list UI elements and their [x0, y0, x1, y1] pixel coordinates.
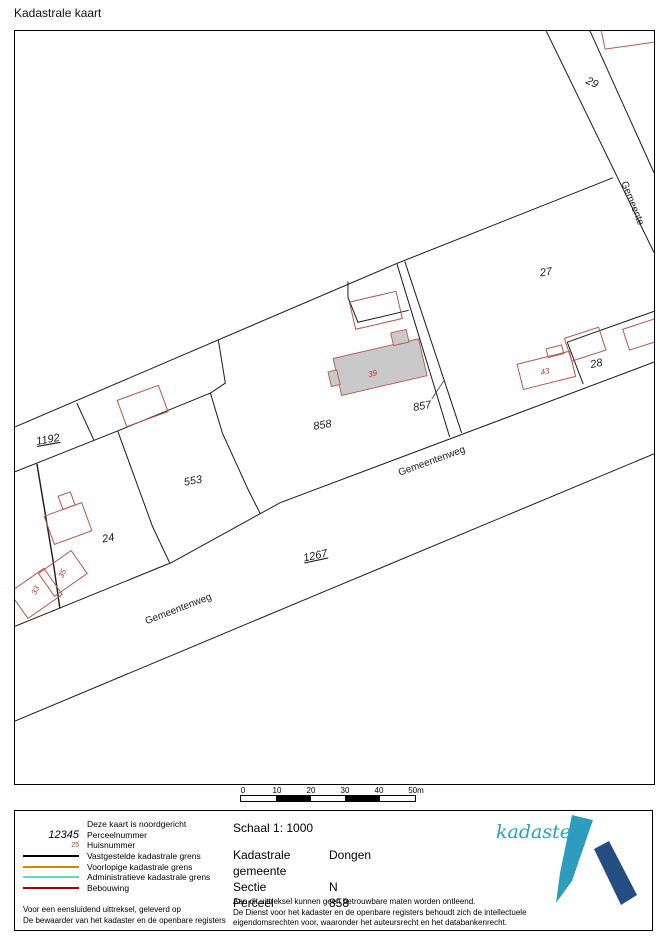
- disclaimer-line-1: Aan dit uittreksel kunnen geen betrouwba…: [233, 897, 533, 908]
- legend-row-vastgestelde-grens: Vastgestelde kadastrale grens: [23, 851, 238, 862]
- scale-tick-50m: 50m: [408, 786, 424, 795]
- legend-label: Perceelnummer: [87, 830, 147, 840]
- disclaimer-line-2: De Dienst voor het kadaster en de openba…: [233, 908, 533, 919]
- parcel-label-1267: 1267: [302, 547, 329, 564]
- parcel-label-1192: 1192: [35, 432, 60, 448]
- house-number-labels: 39 43 35 33: [30, 366, 551, 596]
- info-panel: Deze kaart is noordgericht 12345 Perceel…: [14, 810, 653, 931]
- certification-line-1: Voor een eensluidend uittreksel, gelever…: [23, 904, 253, 915]
- parcel-label-858: 858: [313, 418, 334, 433]
- kadaster-logo: kadaster: [496, 815, 644, 927]
- info-row-gemeente: Kadastrale gemeente Dongen: [233, 847, 371, 879]
- info-label: Kadastrale gemeente: [233, 847, 329, 879]
- buildings: [15, 31, 654, 618]
- scale-tick-10: 10: [273, 786, 282, 795]
- bebouwing-swatch: [23, 887, 79, 889]
- parcel-label-553: 553: [183, 474, 203, 489]
- scale-bar-segments: [240, 795, 416, 802]
- kadaster-logo-mark: [548, 815, 640, 925]
- scale-segment: [311, 796, 346, 801]
- administratieve-grens-swatch: [23, 876, 79, 878]
- house-number-35: 35: [57, 567, 69, 579]
- north-note: Deze kaart is noordgericht: [87, 819, 186, 829]
- house-number-33: 33: [30, 584, 42, 596]
- legend-label: Bebouwing: [87, 883, 129, 893]
- page-title: Kadastrale kaart: [14, 6, 101, 20]
- building-outline: [349, 291, 402, 329]
- scale-segment: [241, 796, 276, 801]
- road-label-gemeentenweg-2: Gemeentenweg: [397, 444, 467, 478]
- scale-segment: [380, 796, 415, 801]
- legend-row-perceelnummer: 12345 Perceelnummer: [23, 830, 238, 841]
- legend-row-bebouwing: Bebouwing: [23, 883, 238, 894]
- building-outline-28: [564, 327, 606, 361]
- huisnummer-sample: 25: [71, 842, 79, 849]
- info-row-sectie: Sectie N: [233, 879, 371, 895]
- building-39: [323, 327, 427, 397]
- building-outline-right: [623, 316, 654, 350]
- scale-bar: 0 10 20 30 40 50m: [240, 786, 416, 802]
- info-value: N: [329, 879, 338, 895]
- building-24: [39, 489, 91, 544]
- info-value: Dongen: [329, 847, 371, 879]
- cadastral-map[interactable]: 29 27 28 857 858 553 1192 24 1267 39 43 …: [14, 30, 655, 785]
- map-info: Schaal 1: 1000 Kadastrale gemeente Donge…: [233, 811, 503, 930]
- parcel-labels: 29 27 28 857 858 553 1192 24 1267: [35, 74, 604, 564]
- road-label-gemeente-right: Gemeente: [618, 180, 646, 228]
- house-number-43: 43: [540, 366, 551, 377]
- legend-row-huisnummer: 25 Huisnummer: [23, 840, 238, 851]
- vastgestelde-grens-swatch: [23, 855, 79, 857]
- scale-segment: [276, 796, 311, 801]
- legend-label: Vastgestelde kadastrale grens: [87, 851, 201, 861]
- disclaimer-line-3: eigendomsrechten voor, waaronder het aut…: [233, 918, 533, 929]
- kadaster-map-document: { "page": { "title": "Kadastrale kaart" …: [0, 0, 669, 944]
- parcel-label-857: 857: [412, 399, 433, 414]
- map-canvas: 29 27 28 857 858 553 1192 24 1267 39 43 …: [15, 31, 654, 784]
- scale-bar-ticks: 0 10 20 30 40 50m: [240, 786, 416, 795]
- parcel-label-28: 28: [588, 357, 604, 372]
- logo-bar-shape: [594, 841, 637, 905]
- logo-pen-shape: [556, 815, 593, 903]
- scale-segment: [345, 796, 380, 801]
- building-outline-left: [117, 385, 168, 426]
- legend-label: Huisnummer: [87, 840, 135, 850]
- scale-tick-0: 0: [241, 786, 245, 795]
- building-outline-top: [597, 31, 654, 49]
- scale-tick-30: 30: [341, 786, 350, 795]
- legend-label: Administratieve kadastrale grens: [87, 872, 210, 882]
- road-labels: Gemeentenweg Gemeentenweg Gemeente: [144, 180, 646, 627]
- parcel-label-27: 27: [538, 266, 554, 280]
- disclaimer: Aan dit uittreksel kunnen geen betrouwba…: [233, 897, 533, 929]
- road-label-gemeentenweg-1: Gemeentenweg: [144, 592, 214, 627]
- scale-tick-40: 40: [375, 786, 384, 795]
- legend-label: Voorlopige kadastrale grens: [87, 862, 192, 872]
- legend: Deze kaart is noordgericht 12345 Perceel…: [23, 819, 238, 893]
- parcel-label-29: 29: [583, 74, 600, 90]
- info-label: Sectie: [233, 879, 329, 895]
- certification-note: Voor een eensluidend uittreksel, gelever…: [23, 904, 253, 926]
- perceelnummer-sample: 12345: [48, 829, 79, 841]
- scale-tick-20: 20: [307, 786, 316, 795]
- legend-row-voorlopige-grens: Voorlopige kadastrale grens: [23, 861, 238, 872]
- certification-line-2: De bewaarder van het kadaster en de open…: [23, 915, 253, 926]
- legend-row-administratieve-grens: Administratieve kadastrale grens: [23, 872, 238, 883]
- scale-text: Schaal 1: 1000: [233, 821, 313, 835]
- voorlopige-grens-swatch: [23, 866, 79, 868]
- parcel-label-24: 24: [100, 532, 115, 546]
